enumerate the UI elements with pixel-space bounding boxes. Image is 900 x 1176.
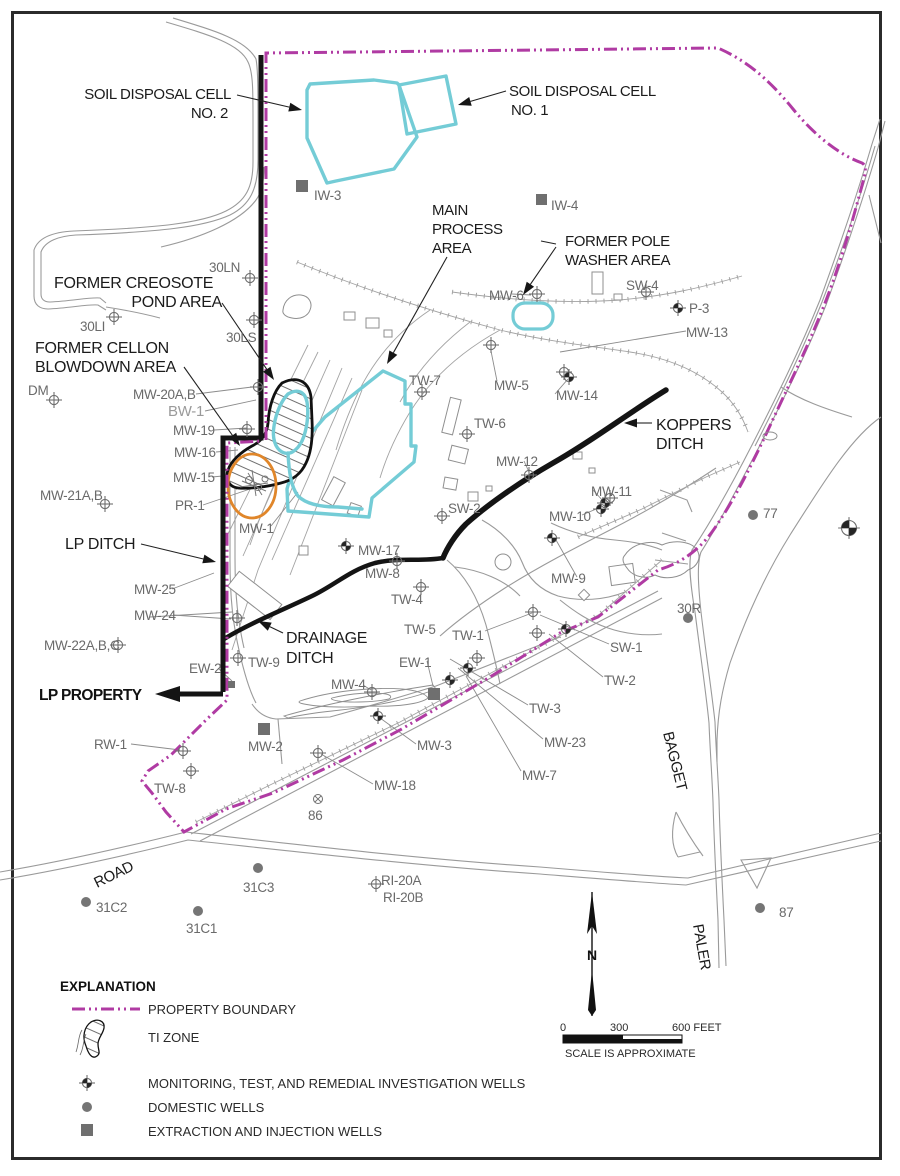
svg-text:N: N xyxy=(587,947,597,963)
svg-text:MW-25: MW-25 xyxy=(134,582,176,597)
svg-text:TW-9: TW-9 xyxy=(248,655,280,670)
svg-text:BLOWDOWN AREA: BLOWDOWN AREA xyxy=(35,359,177,376)
svg-text:SOIL DISPOSAL CELL: SOIL DISPOSAL CELL xyxy=(509,83,656,100)
svg-text:RW-1: RW-1 xyxy=(94,737,127,752)
svg-text:TW-6: TW-6 xyxy=(474,416,506,431)
svg-text:POND AREA: POND AREA xyxy=(131,294,222,311)
svg-text:SOIL DISPOSAL CELL: SOIL DISPOSAL CELL xyxy=(84,86,231,103)
svg-text:PR-1: PR-1 xyxy=(175,498,205,513)
svg-text:MW-15: MW-15 xyxy=(173,470,215,485)
svg-text:86: 86 xyxy=(308,808,322,823)
svg-text:MW-19: MW-19 xyxy=(173,423,215,438)
svg-text:600 FEET: 600 FEET xyxy=(672,1022,722,1034)
svg-text:EW-1: EW-1 xyxy=(399,655,431,670)
svg-text:DITCH: DITCH xyxy=(286,650,333,667)
svg-text:MW-13: MW-13 xyxy=(686,325,728,340)
svg-text:31C3: 31C3 xyxy=(243,880,274,895)
svg-text:KOPPERS: KOPPERS xyxy=(656,417,731,434)
svg-text:0: 0 xyxy=(560,1022,566,1034)
svg-text:MW-6: MW-6 xyxy=(489,288,524,303)
svg-text:MONITORING, TEST, AND REMEDIAL: MONITORING, TEST, AND REMEDIAL INVESTIGA… xyxy=(148,1076,526,1091)
svg-text:TW-8: TW-8 xyxy=(154,781,186,796)
svg-text:DITCH: DITCH xyxy=(656,436,703,453)
svg-text:DRAINAGE: DRAINAGE xyxy=(286,630,367,647)
svg-text:MW-2: MW-2 xyxy=(248,739,283,754)
svg-text:30LS: 30LS xyxy=(226,330,257,345)
svg-text:FORMER POLE: FORMER POLE xyxy=(565,233,670,250)
svg-text:TW-1: TW-1 xyxy=(452,628,484,643)
svg-text:TW-4: TW-4 xyxy=(391,592,423,607)
svg-text:MW-14: MW-14 xyxy=(556,388,599,403)
svg-text:TW-3: TW-3 xyxy=(529,701,561,716)
svg-text:300: 300 xyxy=(610,1022,628,1034)
svg-text:MW-10: MW-10 xyxy=(549,509,591,524)
svg-text:30LN: 30LN xyxy=(209,260,240,275)
svg-text:EW-2: EW-2 xyxy=(189,661,221,676)
svg-text:DM: DM xyxy=(28,383,48,398)
svg-text:RI-20A: RI-20A xyxy=(381,873,422,888)
svg-text:PROPERTY BOUNDARY: PROPERTY BOUNDARY xyxy=(148,1002,296,1017)
svg-text:SW-1: SW-1 xyxy=(610,640,642,655)
svg-text:EXPLANATION: EXPLANATION xyxy=(60,979,156,994)
svg-text:30LI: 30LI xyxy=(80,319,105,334)
svg-text:MW-18: MW-18 xyxy=(374,778,416,793)
svg-text:TW-2: TW-2 xyxy=(604,673,636,688)
svg-text:FORMER CELLON: FORMER CELLON xyxy=(35,340,169,357)
svg-text:MW-11: MW-11 xyxy=(591,484,632,499)
svg-text:IW-3: IW-3 xyxy=(314,188,341,203)
svg-text:MW-17: MW-17 xyxy=(358,543,400,558)
svg-text:TW-7: TW-7 xyxy=(409,373,441,388)
svg-text:EXTRACTION AND INJECTION WELLS: EXTRACTION AND INJECTION WELLS xyxy=(148,1124,382,1139)
svg-text:DOMESTIC WELLS: DOMESTIC WELLS xyxy=(148,1100,265,1115)
svg-text:PROCESS: PROCESS xyxy=(432,221,503,238)
svg-text:FORMER CREOSOTE: FORMER CREOSOTE xyxy=(54,275,213,292)
svg-text:MW-9: MW-9 xyxy=(551,571,586,586)
svg-text:MW-24: MW-24 xyxy=(134,608,177,623)
svg-text:LP PROPERTY: LP PROPERTY xyxy=(39,687,143,704)
svg-text:MW-12: MW-12 xyxy=(496,454,538,469)
svg-text:NO. 2: NO. 2 xyxy=(191,105,228,122)
svg-text:RI-20B: RI-20B xyxy=(383,890,424,905)
svg-text:TW-5: TW-5 xyxy=(404,622,436,637)
svg-text:WASHER AREA: WASHER AREA xyxy=(565,252,670,269)
svg-text:MW-1: MW-1 xyxy=(239,521,274,536)
svg-text:MW-3: MW-3 xyxy=(417,738,452,753)
svg-text:MAIN: MAIN xyxy=(432,202,468,219)
svg-text:30R: 30R xyxy=(677,601,701,616)
svg-text:MW-16: MW-16 xyxy=(174,445,216,460)
svg-text:31C1: 31C1 xyxy=(186,921,217,936)
svg-text:31C2: 31C2 xyxy=(96,900,127,915)
svg-text:P-3: P-3 xyxy=(689,301,709,316)
svg-text:MW-5: MW-5 xyxy=(494,378,529,393)
svg-text:LP DITCH: LP DITCH xyxy=(65,536,135,553)
svg-text:MW-21A,B: MW-21A,B xyxy=(40,488,103,503)
svg-text:IW-4: IW-4 xyxy=(551,198,579,213)
svg-text:MW-4: MW-4 xyxy=(331,677,366,692)
svg-text:SCALE IS APPROXIMATE: SCALE IS APPROXIMATE xyxy=(565,1048,696,1060)
svg-text:MW-20A,B: MW-20A,B xyxy=(133,387,196,402)
svg-text:BW-1: BW-1 xyxy=(168,403,204,420)
svg-text:NO. 1: NO. 1 xyxy=(511,102,548,119)
svg-text:AREA: AREA xyxy=(432,240,472,257)
svg-text:MW-22A,B,C: MW-22A,B,C xyxy=(44,638,120,653)
svg-text:87: 87 xyxy=(779,905,793,920)
svg-text:SW-4: SW-4 xyxy=(626,278,659,293)
svg-text:77: 77 xyxy=(763,506,777,521)
svg-text:MW-8: MW-8 xyxy=(365,566,400,581)
svg-text:TI ZONE: TI ZONE xyxy=(148,1030,200,1045)
svg-text:MW-7: MW-7 xyxy=(522,768,557,783)
svg-text:SW-2: SW-2 xyxy=(448,501,480,516)
svg-text:MW-23: MW-23 xyxy=(544,735,586,750)
